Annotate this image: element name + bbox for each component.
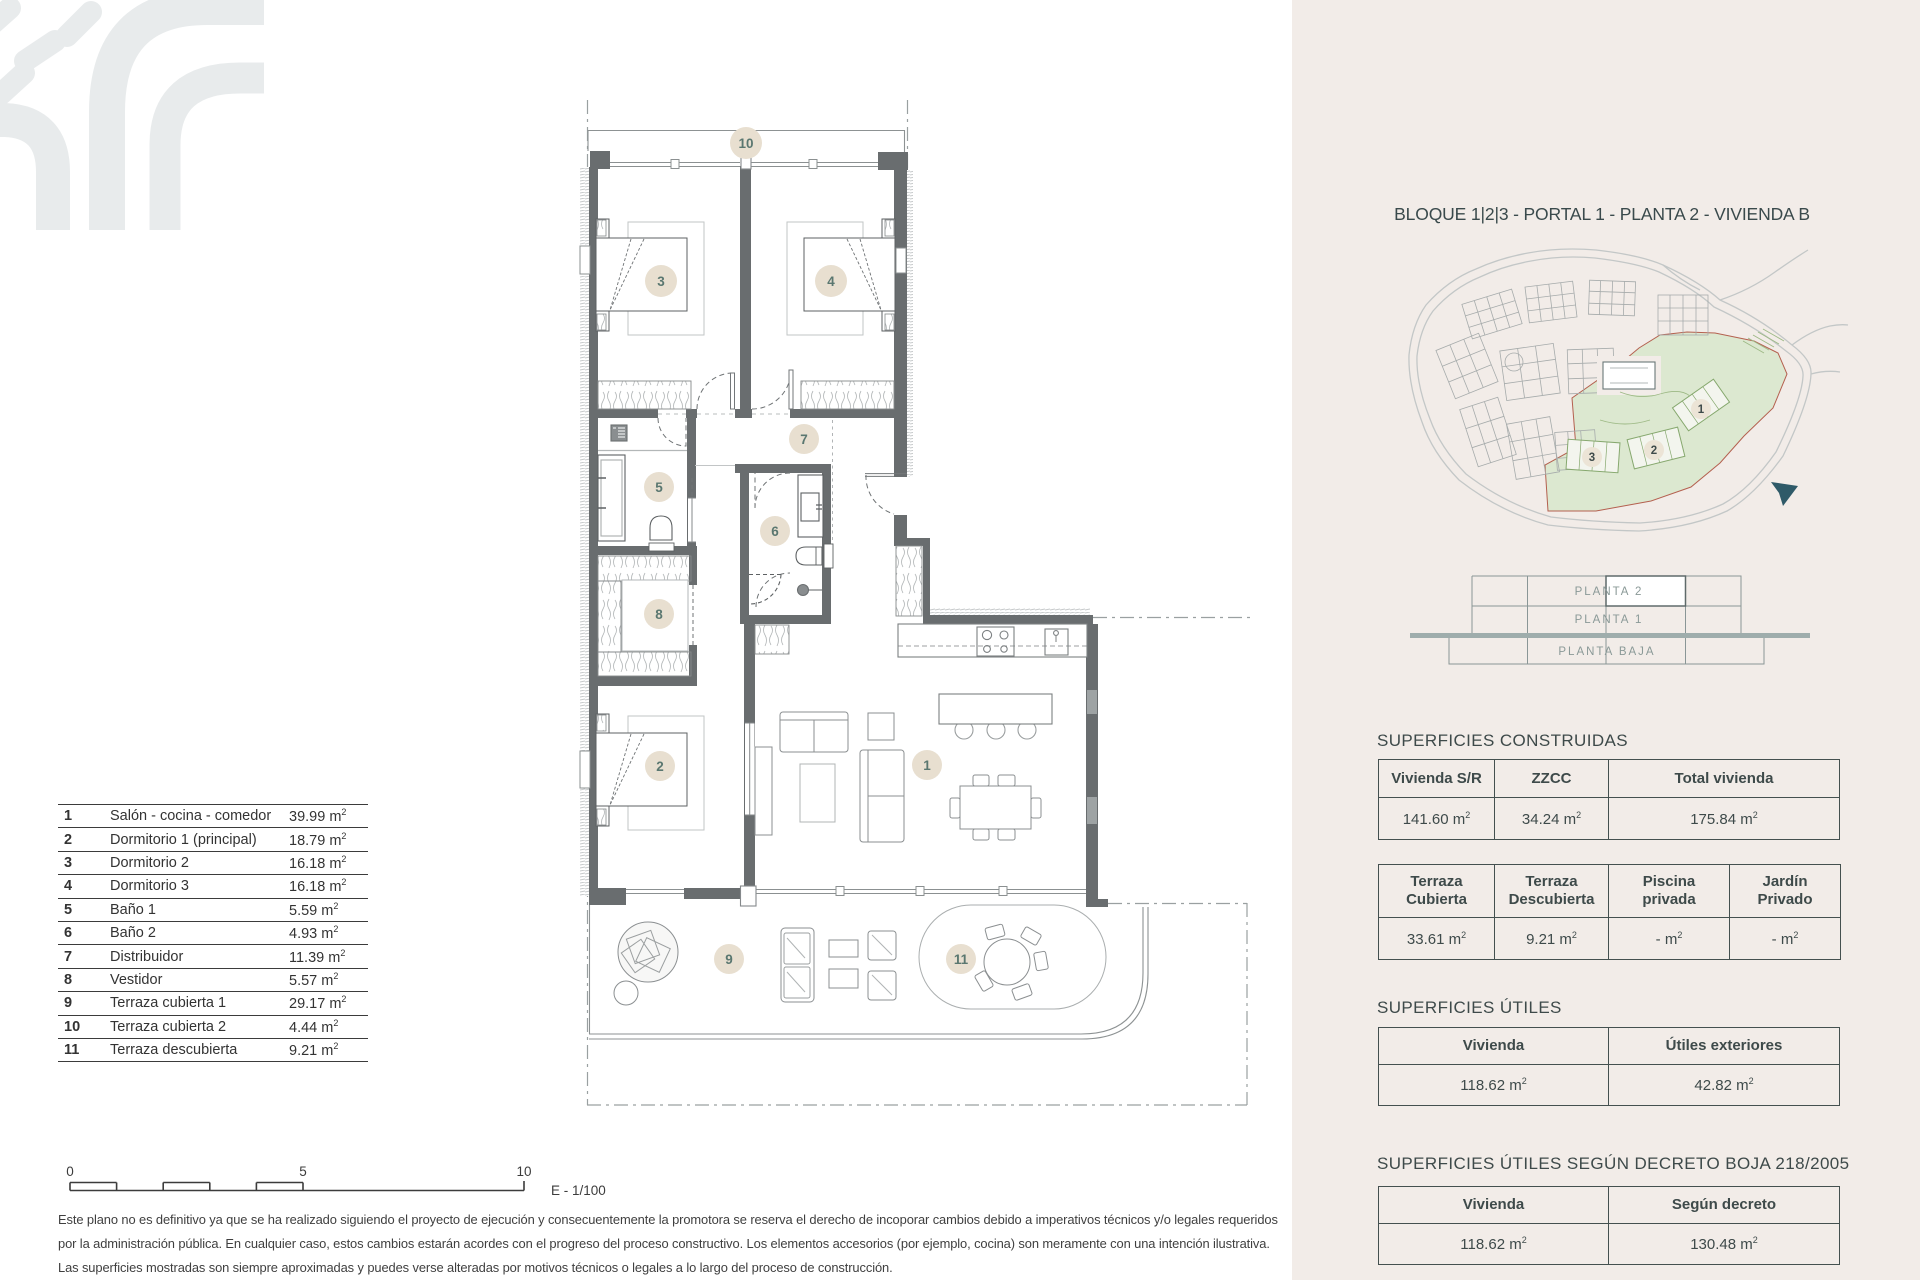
svg-text:4: 4: [827, 274, 835, 289]
svg-text:PLANTA 2: PLANTA 2: [1575, 586, 1644, 598]
svg-text:7: 7: [800, 432, 808, 447]
svg-text:0: 0: [66, 1164, 74, 1179]
svg-text:E - 1/100: E - 1/100: [551, 1183, 606, 1198]
svg-text:9: 9: [725, 952, 733, 967]
svg-text:3: 3: [657, 274, 665, 289]
svg-text:6: 6: [771, 524, 779, 539]
svg-text:PLANTA BAJA: PLANTA BAJA: [1558, 646, 1655, 658]
svg-text:8: 8: [655, 607, 663, 622]
svg-text:10: 10: [516, 1164, 531, 1179]
svg-text:PLANTA 1: PLANTA 1: [1575, 614, 1644, 626]
svg-text:2: 2: [656, 759, 664, 774]
svg-text:2: 2: [1651, 445, 1657, 457]
svg-text:11: 11: [954, 952, 969, 967]
svg-text:1: 1: [923, 758, 931, 773]
svg-text:5: 5: [299, 1164, 307, 1179]
svg-text:10: 10: [738, 136, 753, 151]
svg-text:3: 3: [1589, 452, 1595, 464]
svg-text:5: 5: [655, 480, 663, 495]
svg-text:1: 1: [1698, 404, 1705, 416]
